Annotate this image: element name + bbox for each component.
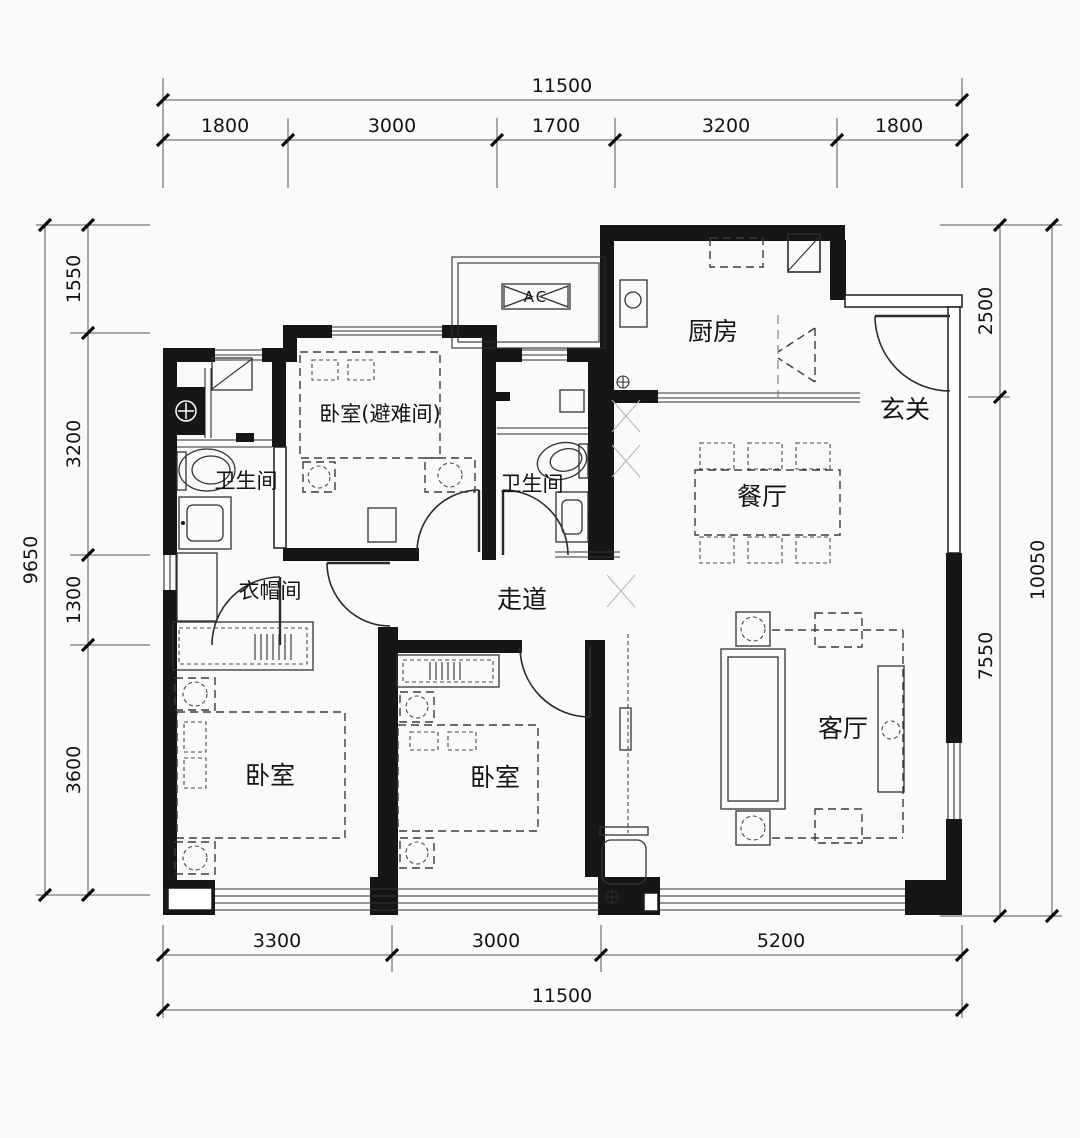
dim-bottom-seg-2: 3000 [472, 930, 520, 952]
bedroom-s-door [520, 647, 590, 717]
dim-left-seg-2: 3200 [63, 420, 85, 468]
floor-plan-canvas: 11500 1800 3000 1700 3200 1800 3300 3000… [0, 0, 1080, 1138]
dimension-bottom: 3300 3000 5200 11500 [157, 930, 968, 1016]
tall-cabinet [177, 553, 217, 621]
bathroom1-fixtures [167, 358, 272, 549]
dim-top-seg-2: 3000 [368, 115, 416, 137]
dimension-top: 11500 1800 3000 1700 3200 1800 [157, 75, 968, 146]
bathroom2-door [503, 490, 568, 555]
window-bottom-right [660, 889, 905, 910]
window-right-wall [948, 743, 960, 819]
cloakroom-door [327, 563, 390, 626]
shower-head [496, 392, 510, 401]
label-bathroom2: 卫生间 [501, 472, 564, 496]
dim-bottom-seg-1: 3300 [253, 930, 301, 952]
dim-top-seg-3: 1700 [532, 115, 580, 137]
refuge-bedroom-furniture [300, 352, 475, 542]
stove [778, 328, 815, 382]
label-living: 客厅 [818, 714, 868, 743]
window-left-wall [164, 555, 176, 590]
bedroom-s-furniture [397, 655, 538, 868]
window-refuge-top [332, 327, 442, 335]
label-dining: 餐厅 [737, 482, 787, 511]
dimension-extension-lines [36, 78, 1062, 1018]
drain-symbol [617, 376, 629, 388]
label-bathroom1: 卫生间 [215, 469, 278, 493]
dim-bottom-total: 11500 [532, 985, 592, 1007]
dim-top-total: 11500 [532, 75, 592, 97]
dim-left-seg-3: 1300 [63, 576, 85, 624]
dimension-right: 2500 7550 10050 [975, 219, 1058, 922]
walls [163, 225, 962, 915]
dimension-left: 9650 1550 3200 1300 3600 [20, 219, 94, 901]
dim-right-seg-2: 7550 [975, 632, 997, 680]
dim-top-seg-4: 3200 [702, 115, 750, 137]
dim-right-seg-1: 2500 [975, 287, 997, 335]
doors [212, 316, 950, 717]
bathroom2-fixtures [496, 390, 592, 542]
cloakroom-furniture [173, 553, 313, 670]
label-bedroom-s: 卧室 [470, 763, 520, 792]
ac-label: AC [524, 288, 548, 306]
dim-right-overall: 10050 [1027, 540, 1049, 600]
drain-symbol [606, 891, 618, 903]
window-bottom-left [215, 889, 600, 910]
label-bedroom-sw: 卧室 [245, 761, 295, 790]
label-corridor: 走道 [497, 585, 547, 614]
dim-top-seg-1: 1800 [201, 115, 249, 137]
closet [173, 622, 313, 670]
dim-top-seg-5: 1800 [875, 115, 923, 137]
label-cloakroom: 衣帽间 [239, 579, 302, 603]
nightstand [175, 678, 215, 710]
living-furniture [600, 612, 904, 884]
refuge-bedroom-door [417, 490, 479, 552]
window-bath2-top [522, 350, 567, 360]
nightstand [175, 842, 215, 874]
dim-left-seg-1: 1550 [63, 255, 85, 303]
label-refuge-bedroom: 卧室(避难间) [319, 402, 440, 426]
label-entry: 玄关 [880, 395, 930, 424]
entry-door [875, 316, 950, 391]
kitchen-fixtures [620, 234, 820, 398]
dim-bottom-seg-3: 5200 [757, 930, 805, 952]
floor-plan-page: 11500 1800 3000 1700 3200 1800 3300 3000… [0, 0, 1080, 1138]
partition-walls [168, 295, 962, 911]
sill-kitchen-door [658, 393, 860, 402]
tv [620, 708, 631, 750]
dim-left-total: 9650 [20, 536, 42, 584]
sofa [721, 649, 785, 809]
label-kitchen: 厨房 [688, 317, 738, 346]
fridge [710, 238, 763, 267]
shower-head [236, 433, 254, 442]
dim-left-seg-4: 3600 [63, 746, 85, 794]
